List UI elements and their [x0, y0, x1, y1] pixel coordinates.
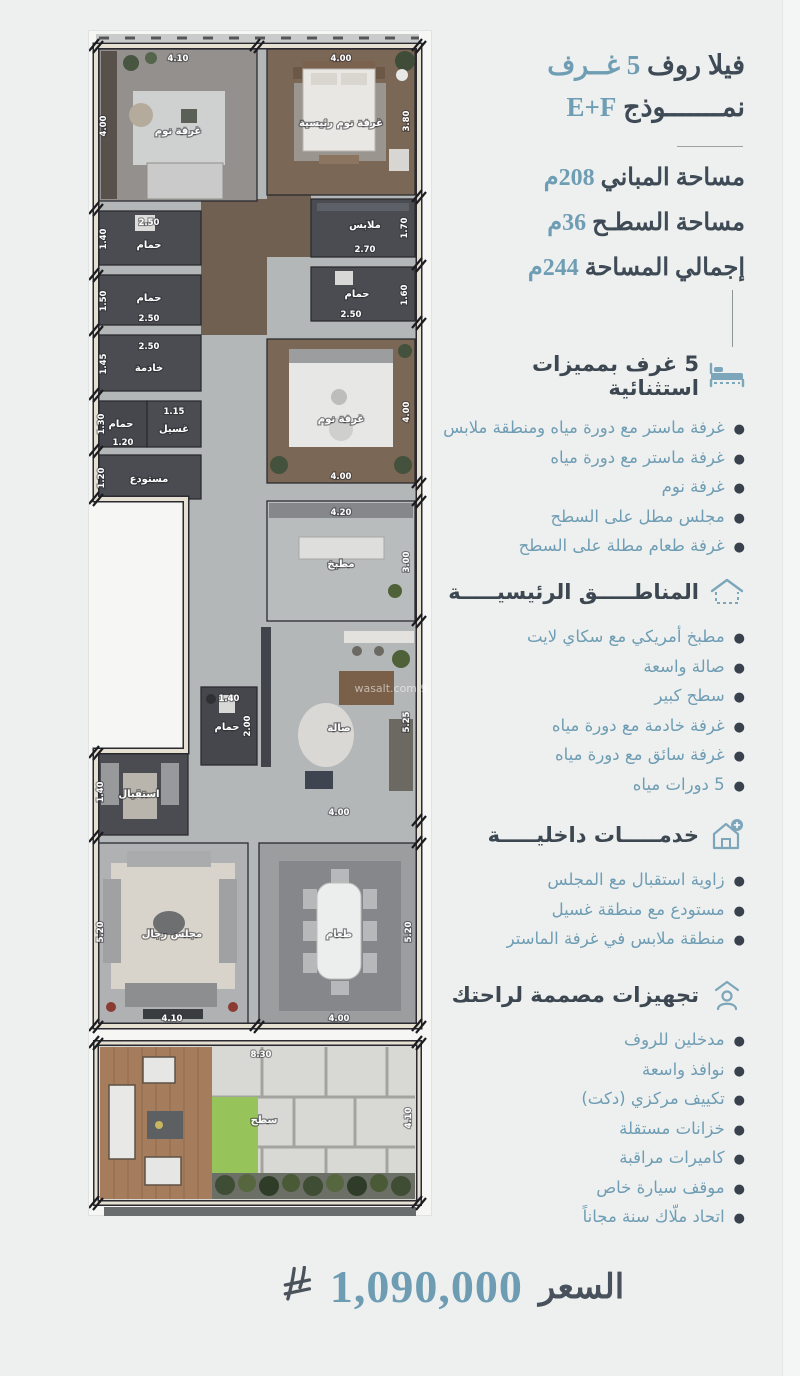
- bullet-text: 5 دورات مياه: [633, 771, 725, 799]
- bullet-text: مدخلين للروف: [624, 1026, 725, 1054]
- bullet-text: خزانات مستقلة: [619, 1115, 724, 1143]
- bullet-dot: ●: [734, 1087, 745, 1115]
- watermark: wasalt.com 9: [354, 682, 427, 695]
- dim-label: 2.00: [243, 715, 253, 736]
- room-label: مستودع: [130, 474, 169, 485]
- list-item: ●غرفة ماستر مع دورة مياه ومنطقة ملابس: [435, 414, 745, 444]
- bullet-dot: ●: [734, 743, 745, 771]
- dim-label: 5.20: [96, 921, 106, 942]
- bullet-text: غرفة ماستر مع دورة مياه ومنطقة ملابس: [443, 414, 725, 442]
- section-title: 5 غرف بمميزات استثنائية: [435, 352, 699, 400]
- stat-roof-area: مساحة السطـح 36م: [528, 201, 745, 246]
- list-item: ●غرفة نوم: [435, 473, 745, 503]
- bullet-text: سطح كبير: [654, 682, 724, 710]
- dim-label: 4.00: [331, 472, 352, 482]
- bullet-dot: ●: [734, 505, 745, 533]
- main-areas-list: ●مطبخ أمريكي مع سكاي لايت ●صالة واسعة ●س…: [435, 623, 745, 800]
- room-label: سطح: [251, 1115, 278, 1126]
- bullet-dot: ●: [734, 1117, 745, 1145]
- dim-label: 1.20: [113, 438, 134, 448]
- room-label: حمام: [109, 419, 134, 430]
- bullet-text: غرفة سائق مع دورة مياه: [555, 741, 725, 769]
- feature-list: ●غرفة ماستر مع دورة مياه ومنطقة ملابس ●غ…: [435, 414, 745, 562]
- dim-label: 3.80: [402, 110, 412, 131]
- room-label: مجلس رجال: [142, 929, 203, 940]
- bullet-dot: ●: [734, 655, 745, 683]
- list-item: ●تكييف مركزي (دكت): [435, 1085, 745, 1115]
- list-item: ●موقف سيارة خاص: [435, 1174, 745, 1204]
- bullet-dot: ●: [734, 898, 745, 926]
- dim-label: 1.40: [99, 228, 109, 249]
- list-item: ●نوافذ واسعة: [435, 1056, 745, 1086]
- house-plus-icon: [709, 818, 745, 852]
- bullet-dot: ●: [734, 1058, 745, 1086]
- list-item: ●سطح كبير: [435, 682, 745, 712]
- bullet-dot: ●: [734, 927, 745, 955]
- list-item: ●غرفة ماستر مع دورة مياه: [435, 444, 745, 474]
- stat-label: إجمالي المساحة: [585, 255, 745, 281]
- list-item: ●اتحاد ملّاك سنة مجاناً: [435, 1203, 745, 1233]
- dim-label: 4.10: [168, 54, 189, 64]
- bullet-dot: ●: [734, 1146, 745, 1174]
- house-icon: [709, 575, 745, 609]
- stat-building-area: مساحة المباني 208م: [528, 156, 745, 201]
- bullet-dot: ●: [734, 1205, 745, 1233]
- dim-label: 2.50: [139, 218, 160, 228]
- dim-label: 1.40: [96, 781, 106, 802]
- room-bedroom1: [99, 49, 257, 201]
- room-label: حمام: [215, 722, 240, 733]
- dim-label: 8.30: [251, 1050, 272, 1060]
- amenities-list: ●مدخلين للروف ●نوافذ واسعة ●تكييف مركزي …: [435, 1026, 745, 1233]
- list-item: ●زاوية استقبال مع المجلس: [435, 866, 745, 896]
- floorplan-drawing: غرفة نوم 4.10 4.00 غرفة نوم رئيسية 4.00 …: [89, 31, 433, 1217]
- person-home-icon: [709, 978, 745, 1012]
- room-label: حمام: [137, 293, 162, 304]
- list-item: ●صالة واسعة: [435, 653, 745, 683]
- stat-value: 244م: [528, 255, 579, 281]
- dim-label: 3.00: [402, 551, 412, 572]
- floorplan-panel: غرفة نوم 4.10 4.00 غرفة نوم رئيسية 4.00 …: [88, 30, 432, 1216]
- price-label: السعر: [539, 1267, 624, 1307]
- stat-value: 208م: [544, 165, 595, 191]
- dim-label: 1.70: [400, 217, 410, 238]
- list-item: ●مطبخ أمريكي مع سكاي لايت: [435, 623, 745, 653]
- dim-label: 1.40: [219, 694, 240, 704]
- dim-label: 1.45: [99, 353, 109, 374]
- section-title: خدمـــــات داخليـــــة: [488, 823, 699, 847]
- room-label: غسيل: [159, 424, 189, 435]
- bullet-text: غرفة طعام مطلة على السطح: [519, 532, 725, 560]
- bullet-text: منطقة ملابس في غرفة الماستر: [507, 925, 725, 953]
- price-value: 1,090,000: [330, 1260, 523, 1313]
- bullet-dot: ●: [734, 625, 745, 653]
- room-label: ملابس: [349, 220, 381, 231]
- room-label: صالة: [327, 723, 350, 734]
- dim-label: 5.20: [404, 921, 414, 942]
- bullet-dot: ●: [734, 773, 745, 801]
- room-label: غرفة نوم رئيسية: [299, 118, 383, 129]
- dim-label: 2.50: [341, 310, 362, 320]
- stat-total-area: إجمالي المساحة 244م: [528, 246, 745, 291]
- bullet-dot: ●: [734, 1176, 745, 1204]
- title-text: فيلا روف: [647, 50, 745, 80]
- bullet-text: مجلس مطل على السطح: [550, 503, 724, 531]
- dim-label: 4.20: [331, 508, 352, 518]
- section-internal-services: خدمـــــات داخليـــــة ●زاوية استقبال مع…: [435, 818, 745, 955]
- dim-label: 4.00: [329, 1014, 350, 1024]
- bullet-text: نوافذ واسعة: [642, 1056, 725, 1084]
- list-item: ●خزانات مستقلة: [435, 1115, 745, 1145]
- title-model-code: E+F: [566, 92, 616, 122]
- section-amenities: تجهيزات مصممة لراحتك ●مدخلين للروف ●نواف…: [435, 978, 745, 1233]
- dim-label: 1.50: [99, 290, 109, 311]
- bullet-dot: ●: [734, 475, 745, 503]
- dim-label: 1.15: [164, 407, 185, 417]
- list-item: ●غرفة طعام مطلة على السطح: [435, 532, 745, 562]
- bullet-text: صالة واسعة: [643, 653, 724, 681]
- details-panel: فيلا روف 5 غــرف نمـــــــوذج E+F مساحة …: [435, 0, 745, 1376]
- section-main-areas: المناطـــــق الرئيسيـــــة ●مطبخ أمريكي …: [435, 575, 745, 800]
- list-item: ●5 دورات مياه: [435, 771, 745, 801]
- room-label: حمام: [345, 289, 370, 300]
- section-title: تجهيزات مصممة لراحتك: [452, 983, 699, 1007]
- internal-services-list: ●زاوية استقبال مع المجلس ●مستودع مع منطق…: [435, 866, 745, 955]
- dim-label: 2.50: [139, 314, 160, 324]
- list-item: ●منطقة ملابس في غرفة الماستر: [435, 925, 745, 955]
- dim-label: 4.00: [329, 808, 350, 818]
- section-header: خدمـــــات داخليـــــة: [435, 818, 745, 852]
- title-line2: نمـــــــوذج E+F: [547, 86, 745, 128]
- title-divider: [677, 146, 743, 147]
- bullet-text: مستودع مع منطقة غسيل: [552, 896, 725, 924]
- page-title: فيلا روف 5 غــرف نمـــــــوذج E+F: [547, 44, 745, 128]
- bullet-text: مطبخ أمريكي مع سكاي لايت: [527, 623, 725, 651]
- page-edge-strip: [782, 0, 800, 1376]
- stat-value: 36م: [547, 210, 586, 236]
- list-item: ●كاميرات مراقبة: [435, 1144, 745, 1174]
- dim-label: 5.25: [402, 711, 412, 732]
- list-item: ●غرفة سائق مع دورة مياه: [435, 741, 745, 771]
- room-bedroom2: [267, 339, 415, 483]
- dim-label: 4.10: [162, 1014, 183, 1024]
- section-header: 5 غرف بمميزات استثنائية: [435, 352, 745, 400]
- dim-label: 4.00: [99, 115, 109, 136]
- bullet-text: موقف سيارة خاص: [596, 1174, 724, 1202]
- room-label: حمام: [137, 240, 162, 251]
- bullet-text: اتحاد ملّاك سنة مجاناً: [583, 1203, 725, 1231]
- room-label: غرفة نوم: [155, 126, 202, 137]
- bullet-dot: ●: [734, 1028, 745, 1056]
- bullet-dot: ●: [734, 868, 745, 896]
- price-row: السعر 1,090,000: [106, 1260, 800, 1313]
- list-item: ●مجلس مطل على السطح: [435, 503, 745, 533]
- stat-label: مساحة السطـح: [592, 210, 745, 236]
- bullet-dot: ●: [734, 446, 745, 474]
- bed-icon: [709, 359, 745, 393]
- dim-label: 1.20: [97, 467, 107, 488]
- dim-label: 2.50: [139, 342, 160, 352]
- dim-label: 4.10: [404, 1107, 414, 1128]
- dim-label: 1.30: [97, 413, 107, 434]
- room-label: مطبخ: [327, 559, 354, 570]
- room-label: غرفة نوم: [318, 414, 365, 425]
- bullet-dot: ●: [734, 534, 745, 562]
- list-item: ●غرفة خادمة مع دورة مياه: [435, 712, 745, 742]
- dim-label: 1.60: [400, 284, 410, 305]
- room-label: استقبال: [118, 789, 159, 800]
- title-model-word: نمـــــــوذج: [623, 92, 745, 122]
- bullet-text: غرفة خادمة مع دورة مياه: [552, 712, 725, 740]
- title-rooms-count: 5 غــرف: [547, 50, 640, 80]
- section-header: المناطـــــق الرئيسيـــــة: [435, 575, 745, 609]
- list-item: ●مستودع مع منطقة غسيل: [435, 896, 745, 926]
- bullet-text: غرفة نوم: [662, 473, 725, 501]
- section-header: تجهيزات مصممة لراحتك: [435, 978, 745, 1012]
- bullet-text: زاوية استقبال مع المجلس: [547, 866, 724, 894]
- bullet-dot: ●: [734, 684, 745, 712]
- dim-label: 4.00: [402, 401, 412, 422]
- room-label: خادمة: [135, 363, 163, 374]
- list-item: ●مدخلين للروف: [435, 1026, 745, 1056]
- bullet-dot: ●: [734, 714, 745, 742]
- section-title: المناطـــــق الرئيسيـــــة: [448, 580, 699, 604]
- room-label: طعام: [326, 929, 352, 940]
- title-line1: فيلا روف 5 غــرف: [547, 44, 745, 86]
- dim-label: 4.00: [331, 54, 352, 64]
- bullet-text: كاميرات مراقبة: [619, 1144, 724, 1172]
- saudi-riyal-symbol-icon: [282, 1266, 314, 1308]
- dim-label: 2.70: [355, 245, 376, 255]
- bullet-dot: ●: [734, 416, 745, 444]
- bullet-text: تكييف مركزي (دكت): [581, 1085, 724, 1113]
- section-features: 5 غرف بمميزات استثنائية ●غرفة ماستر مع د…: [435, 352, 745, 562]
- roof-shadow-strip: [104, 1207, 416, 1216]
- section-divider-vertical: [732, 290, 733, 347]
- area-stats: مساحة المباني 208م مساحة السطـح 36م إجما…: [528, 156, 745, 291]
- bullet-text: غرفة ماستر مع دورة مياه: [550, 444, 724, 472]
- stat-label: مساحة المباني: [601, 165, 745, 191]
